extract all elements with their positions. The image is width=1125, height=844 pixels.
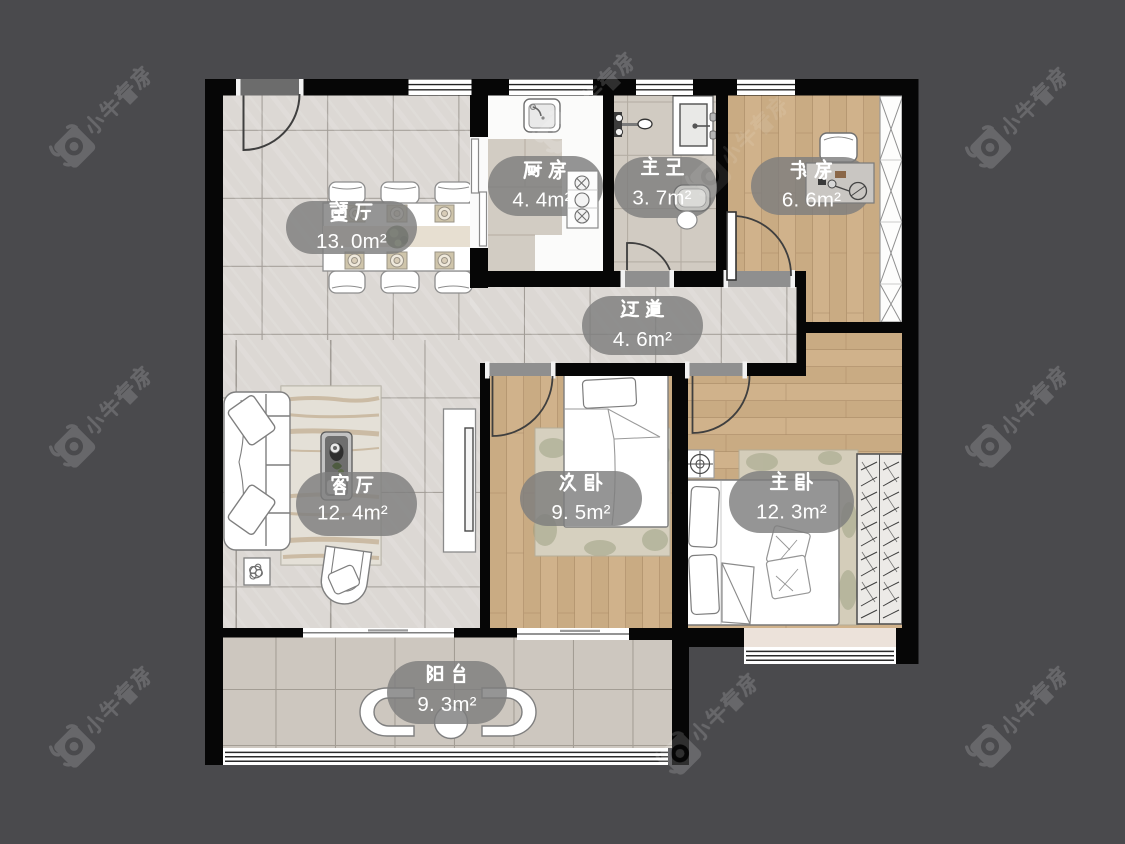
svg-text:9. 3m²: 9. 3m²	[417, 693, 476, 716]
svg-text:3. 7m²: 3. 7m²	[632, 187, 691, 210]
svg-text:4. 4m²: 4. 4m²	[512, 189, 571, 212]
svg-text:4. 6m²: 4. 6m²	[613, 328, 672, 351]
svg-text:13. 0m²: 13. 0m²	[316, 230, 387, 253]
svg-text:9. 5m²: 9. 5m²	[551, 501, 610, 524]
svg-text:6. 6m²: 6. 6m²	[782, 189, 841, 212]
svg-text:12. 3m²: 12. 3m²	[756, 501, 827, 524]
svg-text:12. 4m²: 12. 4m²	[317, 502, 388, 525]
